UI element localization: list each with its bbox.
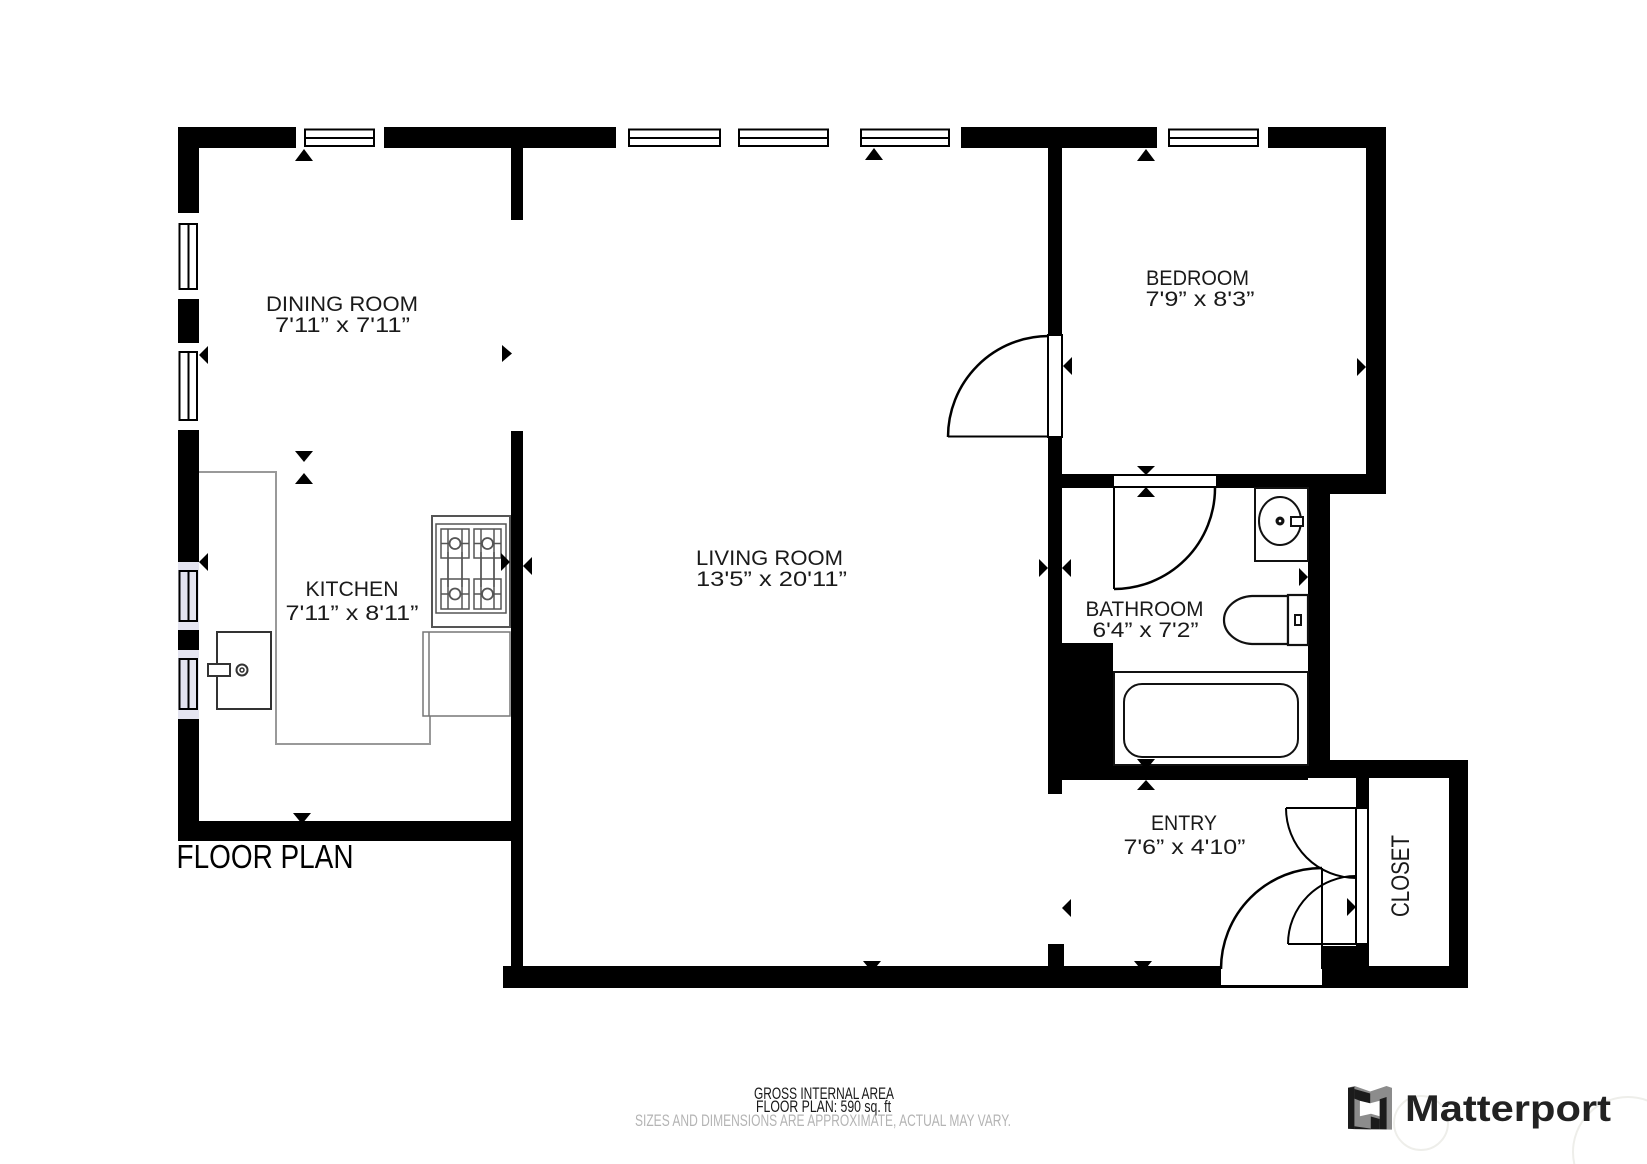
- svg-text:FLOOR PLAN: FLOOR PLAN: [177, 838, 354, 875]
- svg-text:7'11” x 7'11”: 7'11” x 7'11”: [275, 313, 410, 337]
- svg-text:7'11” x 8'11”: 7'11” x 8'11”: [286, 601, 419, 625]
- svg-text:7'6” x 4'10”: 7'6” x 4'10”: [1124, 835, 1246, 859]
- svg-text:ENTRY: ENTRY: [1151, 811, 1217, 835]
- svg-text:7'9” x 8'3”: 7'9” x 8'3”: [1146, 287, 1255, 311]
- svg-text:CLOSET: CLOSET: [1387, 835, 1415, 917]
- svg-text:13'5” x 20'11”: 13'5” x 20'11”: [696, 567, 847, 591]
- svg-text:KITCHEN: KITCHEN: [306, 577, 399, 601]
- svg-text:6'4” x 7'2”: 6'4” x 7'2”: [1093, 618, 1199, 642]
- svg-text:SIZES AND DIMENSIONS ARE APPRO: SIZES AND DIMENSIONS ARE APPROXIMATE, AC…: [635, 1112, 1011, 1130]
- svg-text:Matterport: Matterport: [1405, 1088, 1611, 1129]
